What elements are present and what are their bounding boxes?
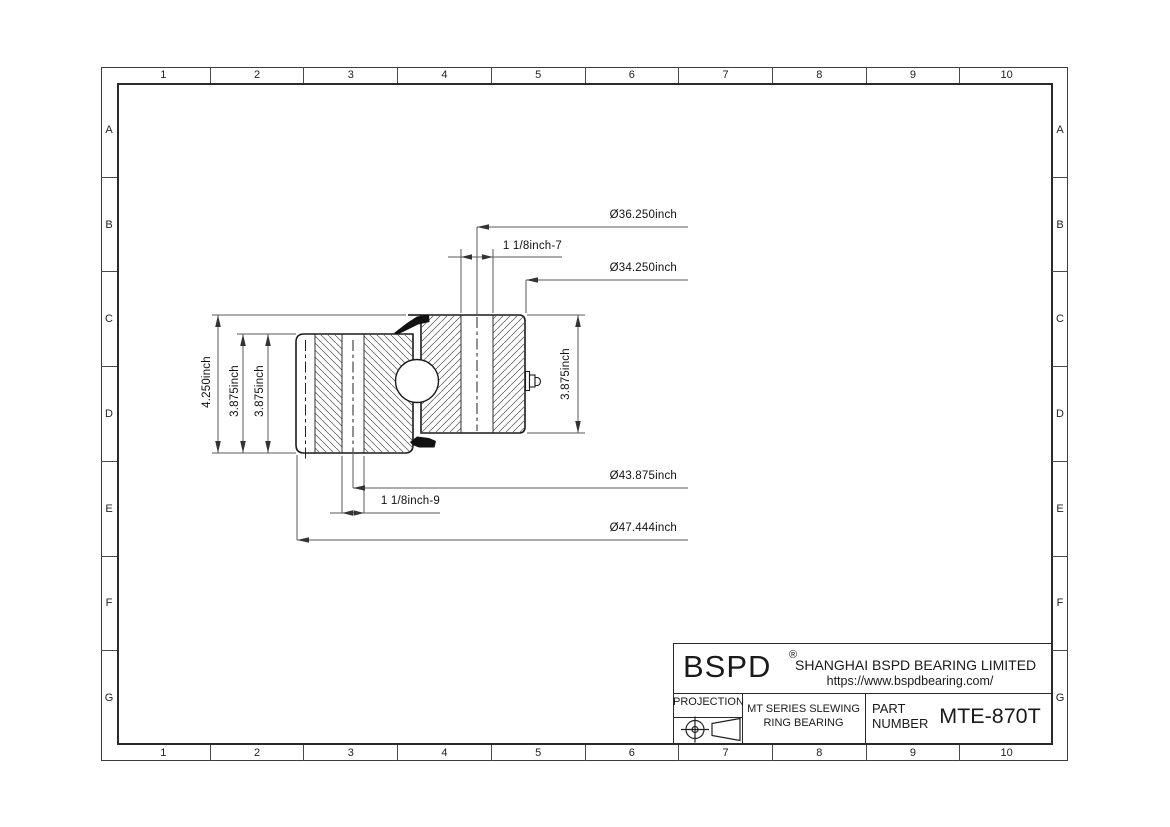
part-label-line1: PART [872,701,905,716]
col-label: 10 [959,67,1053,83]
col-label: 2 [210,745,304,761]
row-label: A [101,83,117,177]
dim-outer-hole-thread: 1 1/8inch-9 [320,495,440,507]
part-number: MTE-870T [930,704,1050,729]
company-name: SHANGHAI BSPD BEARING LIMITED [795,657,1025,673]
series-line2: RING BEARING [742,717,865,729]
projection-label: PROJECTION [673,696,742,708]
col-label: 1 [117,67,210,83]
dim-outer-diameter: Ø47.444inch [557,522,677,534]
row-label: F [101,556,117,651]
part-label-line2: NUMBER [872,716,928,731]
col-label: 8 [772,745,866,761]
row-label: C [1052,271,1068,366]
col-label: 1 [117,745,210,761]
series-line1: MT SERIES SLEWING [742,703,865,715]
row-label: F [1052,556,1068,651]
dim-outer-ring-height-a: 3.875inch [227,351,243,431]
col-label: 9 [866,745,960,761]
row-label: G [1052,650,1068,745]
col-label: 8 [772,67,866,83]
col-label: 9 [866,67,960,83]
column-ruler-top: 1 2 3 4 5 6 7 8 9 10 [117,67,1053,83]
row-label: B [101,177,117,272]
row-label: E [101,461,117,556]
col-label: 3 [303,67,397,83]
row-label: D [1052,366,1068,461]
row-ruler-left: A B C D E F G [101,83,117,745]
company-website: https://www.bspdbearing.com/ [795,674,1025,688]
col-label: 7 [678,67,772,83]
dim-bore-diameter: Ø34.250inch [557,262,677,274]
dim-inner-ring-height: 3.875inch [558,334,574,414]
col-label: 7 [678,745,772,761]
row-label: B [1052,177,1068,272]
dim-inner-bolt-circle: Ø36.250inch [557,209,677,221]
dim-inner-hole-thread: 1 1/8inch-7 [442,240,562,252]
col-label: 3 [303,745,397,761]
row-label: E [1052,461,1068,556]
col-label: 4 [397,67,491,83]
row-label: A [1052,83,1068,177]
col-label: 4 [397,745,491,761]
col-label: 6 [585,67,679,83]
drawing-sheet: 1 2 3 4 5 6 7 8 9 10 1 2 3 4 5 6 7 8 9 1… [0,0,1170,827]
dim-outer-ring-height-b: 3.875inch [252,351,268,431]
col-label: 5 [491,67,585,83]
col-label: 5 [491,745,585,761]
row-label: G [101,650,117,745]
column-ruler-bottom: 1 2 3 4 5 6 7 8 9 10 [117,745,1053,761]
row-ruler-right: A B C D E F G [1052,83,1068,745]
projection-divider [674,717,742,718]
row-label: C [101,271,117,366]
dim-outer-bolt-circle: Ø43.875inch [557,470,677,482]
col-label: 6 [585,745,679,761]
col-label: 2 [210,67,304,83]
dim-overall-height: 4.250inch [199,342,215,422]
row-label: D [101,366,117,461]
col-label: 10 [959,745,1053,761]
